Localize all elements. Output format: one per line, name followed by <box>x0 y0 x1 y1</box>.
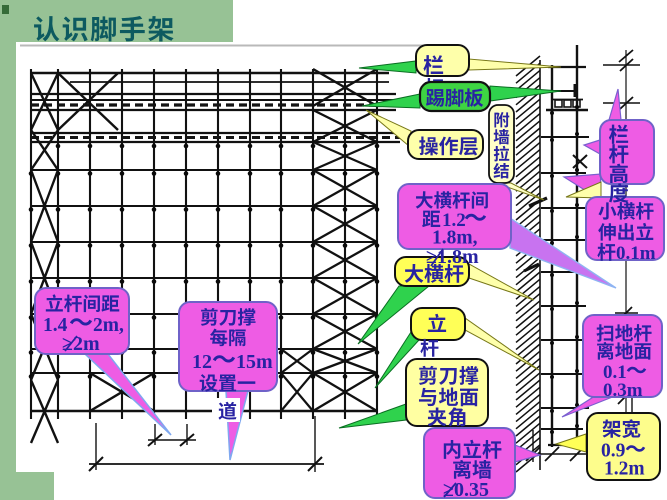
svg-text:1.2m: 1.2m <box>604 459 645 480</box>
svg-text:≥1.8m: ≥1.8m <box>426 246 479 268</box>
svg-text:0.3m: 0.3m <box>603 380 643 401</box>
svg-text:0.1m: 0.1m <box>616 243 656 264</box>
svg-text:15m: 15m <box>236 351 273 373</box>
svg-text:≥2m: ≥2m <box>62 333 100 355</box>
svg-text:12: 12 <box>192 351 212 373</box>
